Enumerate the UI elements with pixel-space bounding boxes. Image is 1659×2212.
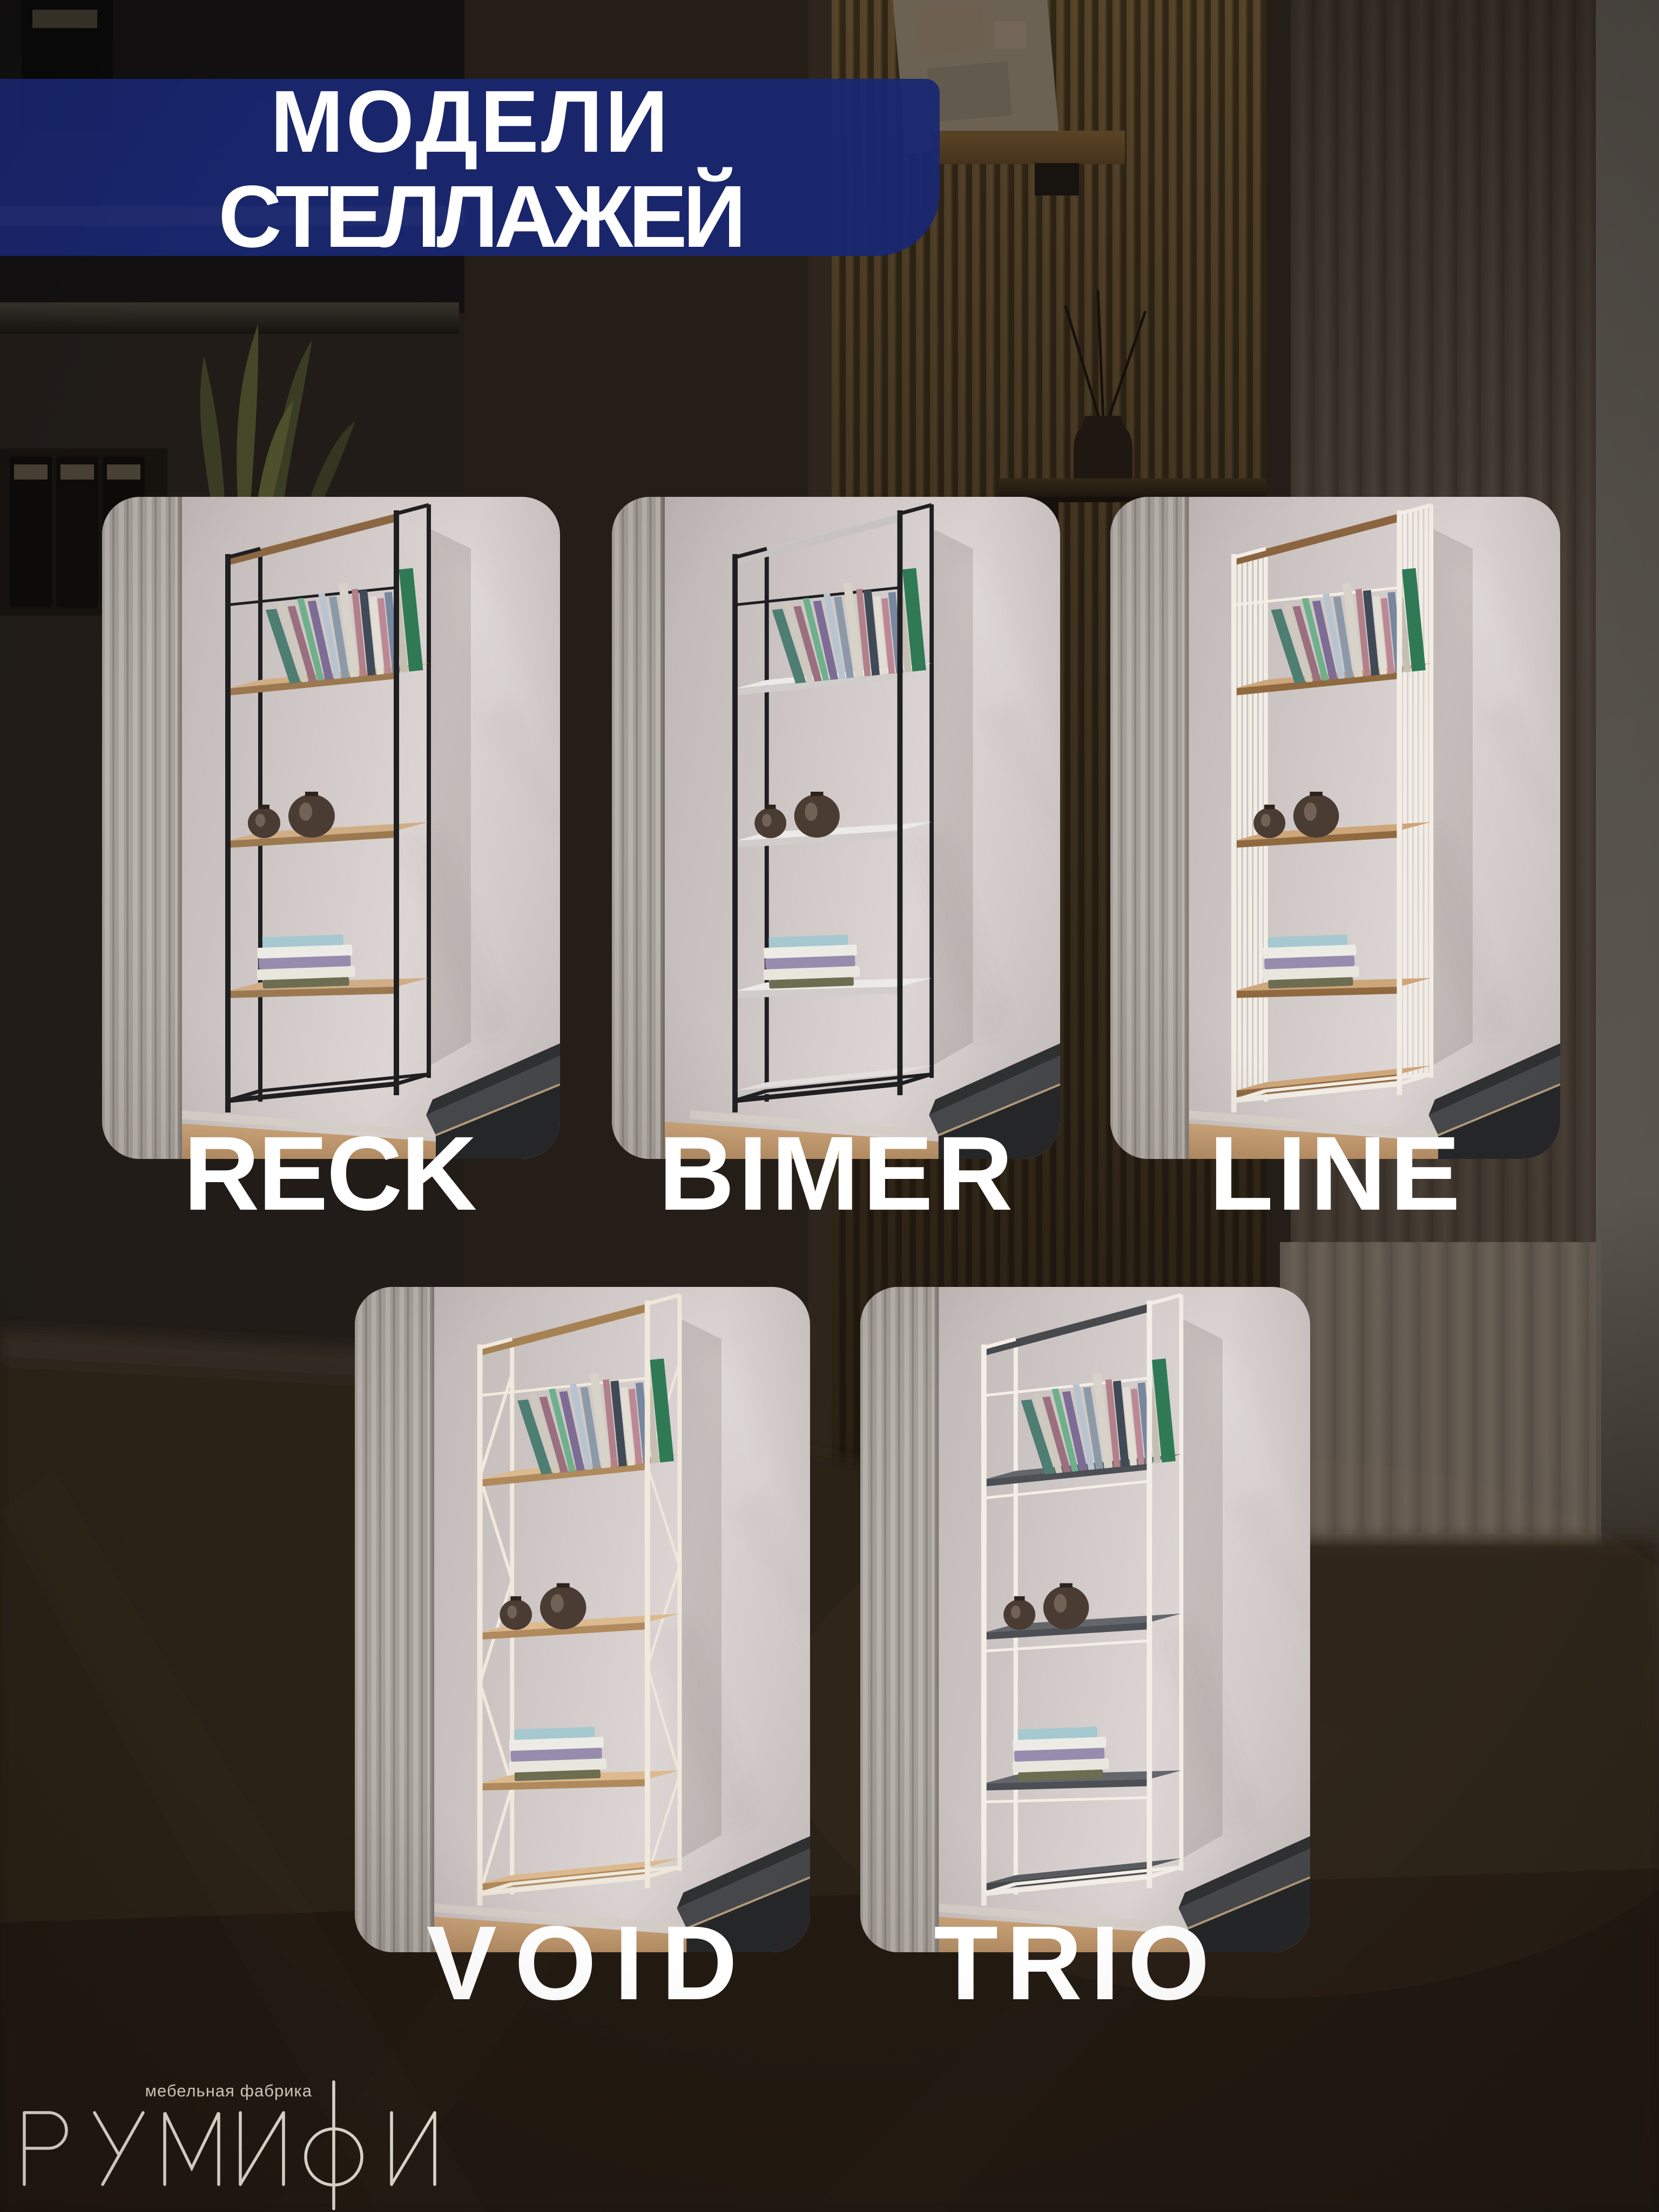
svg-text:мебельная фабрика: мебельная фабрика	[145, 2081, 312, 2100]
